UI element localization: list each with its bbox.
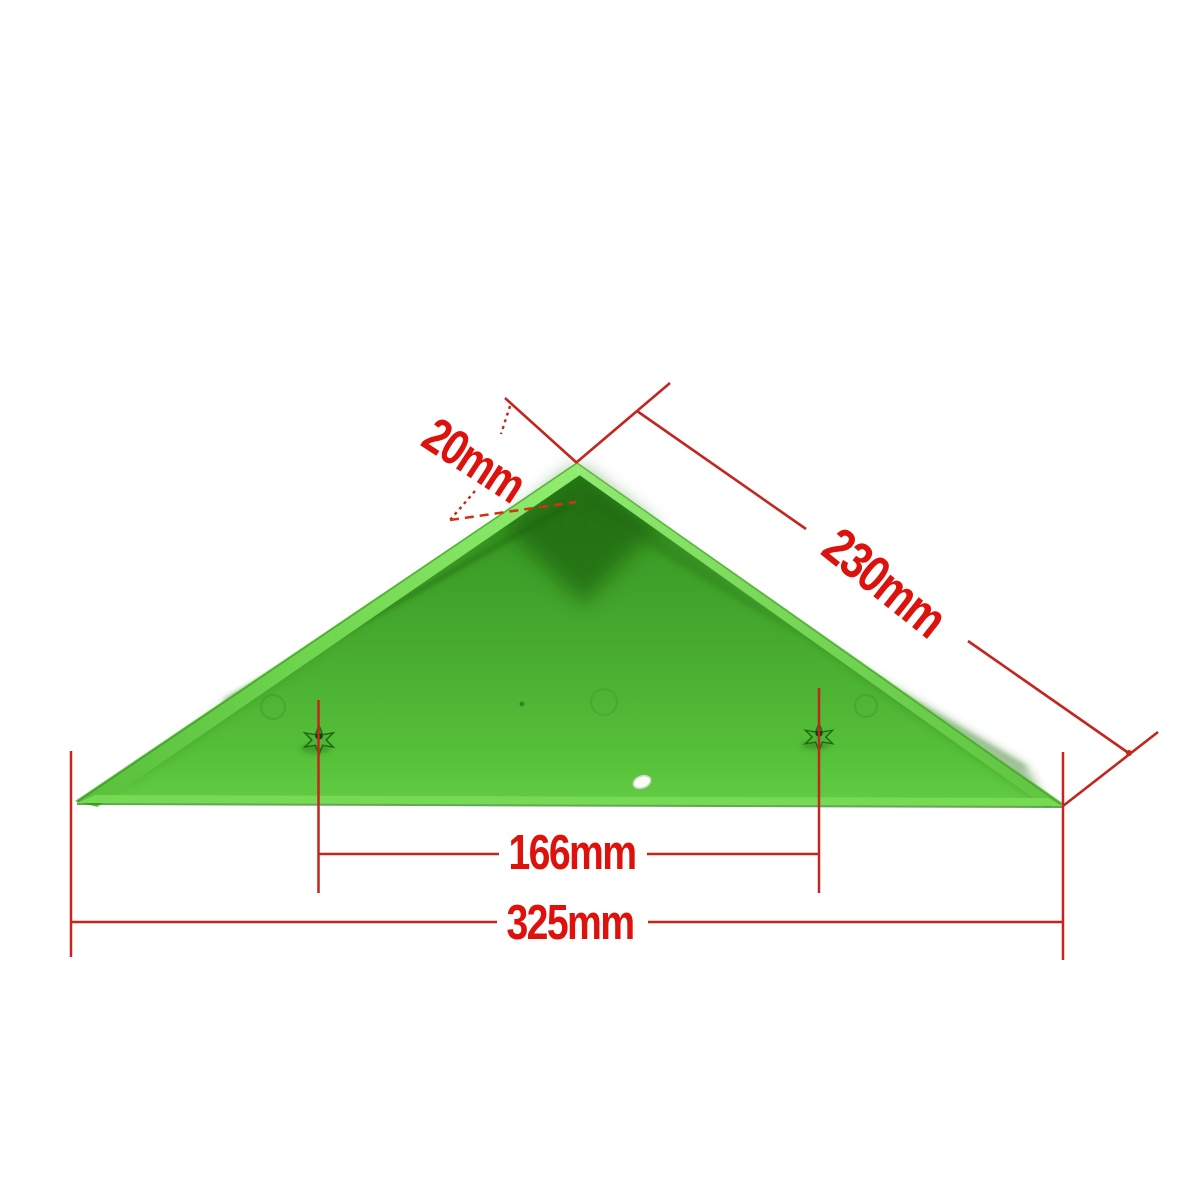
lip-depth-witness-tick-top: [501, 406, 510, 434]
lip-depth-witness-tick-bottom: [450, 491, 475, 520]
edge-length-extension-apex: [577, 383, 670, 462]
edge-length-dimension-line-upper: [637, 411, 806, 529]
screw-spacing-label: 166mm: [508, 825, 635, 881]
edge-length-extension-tip: [1063, 732, 1158, 806]
surface-speck: [520, 702, 525, 707]
product-dimension-diagram: 20mm 230mm 166mm 325mm: [0, 0, 1200, 1200]
corner-shelf-illustration: [0, 0, 1200, 1200]
edge-length-dimension-line-lower: [968, 641, 1130, 754]
base-width-label: 325mm: [506, 895, 633, 951]
